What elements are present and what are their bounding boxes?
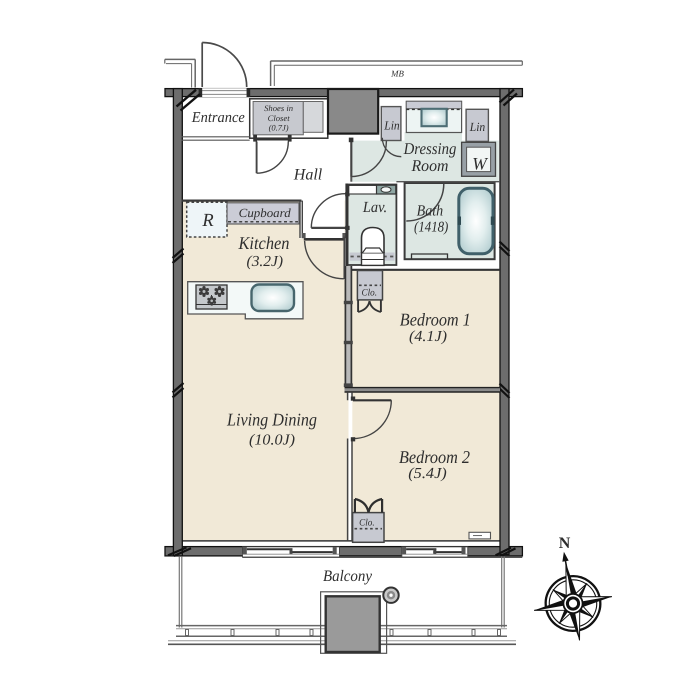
svg-text:Hall: Hall — [293, 167, 323, 184]
svg-text:W: W — [472, 154, 488, 174]
svg-text:Room: Room — [411, 156, 449, 175]
svg-text:Bedroom 2: Bedroom 2 — [399, 447, 470, 467]
svg-text:Lav.: Lav. — [362, 199, 387, 216]
svg-text:(4.1J): (4.1J) — [409, 328, 447, 345]
svg-text:Closet: Closet — [268, 114, 291, 123]
svg-text:Clo.: Clo. — [362, 287, 378, 298]
svg-text:Lin: Lin — [383, 119, 399, 133]
svg-text:Entrance: Entrance — [191, 110, 245, 126]
svg-text:R: R — [201, 211, 213, 231]
svg-text:Bath: Bath — [417, 202, 444, 219]
svg-text:Cupboard: Cupboard — [239, 206, 292, 220]
svg-text:N: N — [559, 535, 571, 552]
svg-text:(3.2J): (3.2J) — [247, 253, 284, 270]
svg-text:(10.0J): (10.0J) — [249, 432, 295, 449]
svg-text:Living Dining: Living Dining — [226, 410, 317, 430]
svg-text:Shoes in: Shoes in — [264, 104, 293, 113]
svg-text:Balcony: Balcony — [323, 568, 373, 585]
svg-text:(5.4J): (5.4J) — [408, 465, 447, 482]
svg-text:Kitchen: Kitchen — [238, 233, 290, 253]
svg-text:MB: MB — [390, 69, 404, 79]
svg-text:Clo.: Clo. — [359, 517, 375, 528]
svg-text:(1418): (1418) — [414, 220, 448, 236]
svg-text:Bedroom 1: Bedroom 1 — [400, 310, 471, 330]
svg-text:Lin: Lin — [469, 120, 485, 134]
svg-text:(0.7J): (0.7J) — [269, 123, 289, 132]
